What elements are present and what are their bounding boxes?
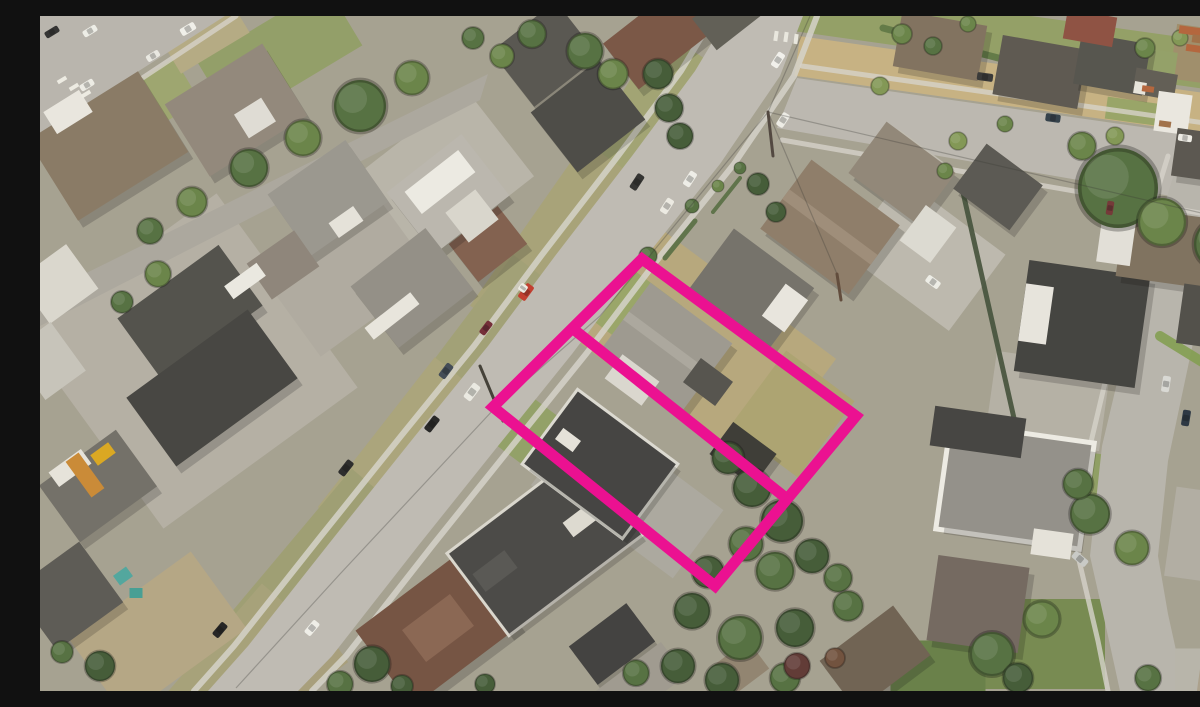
photo-haze: [40, 16, 1200, 691]
neighbourhood-scene: [40, 16, 1200, 691]
aerial-photo: [40, 16, 1200, 691]
